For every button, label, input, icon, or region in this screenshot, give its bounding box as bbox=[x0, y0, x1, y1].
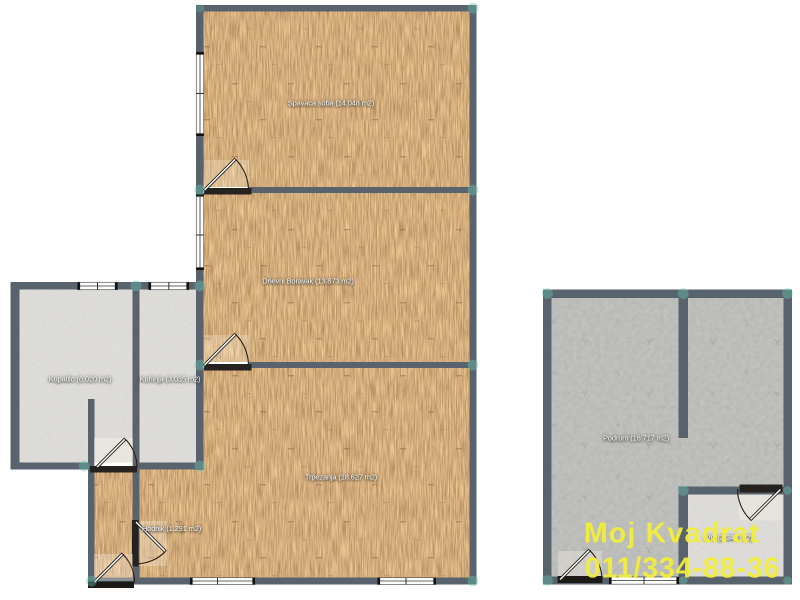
svg-text:Podrum (16.717 m2): Podrum (16.717 m2) bbox=[603, 434, 670, 443]
svg-text:Hodnik (1.291 m2): Hodnik (1.291 m2) bbox=[142, 524, 202, 533]
svg-text:Spavaca soba (14.048 m2): Spavaca soba (14.048 m2) bbox=[288, 99, 375, 108]
svg-text:Trpezarija (18.627 m2): Trpezarija (18.627 m2) bbox=[305, 473, 378, 482]
svg-text:Kuhinja (3.035 m2): Kuhinja (3.035 m2) bbox=[140, 375, 201, 384]
svg-text:011/334-88-36: 011/334-88-36 bbox=[585, 553, 781, 585]
svg-text:Kupatilo (6.020 m2): Kupatilo (6.020 m2) bbox=[49, 375, 112, 384]
svg-text:Moj Kvadrat: Moj Kvadrat bbox=[584, 518, 760, 550]
svg-text:Dnevni Boravak (13.873 m2): Dnevni Boravak (13.873 m2) bbox=[262, 277, 354, 286]
